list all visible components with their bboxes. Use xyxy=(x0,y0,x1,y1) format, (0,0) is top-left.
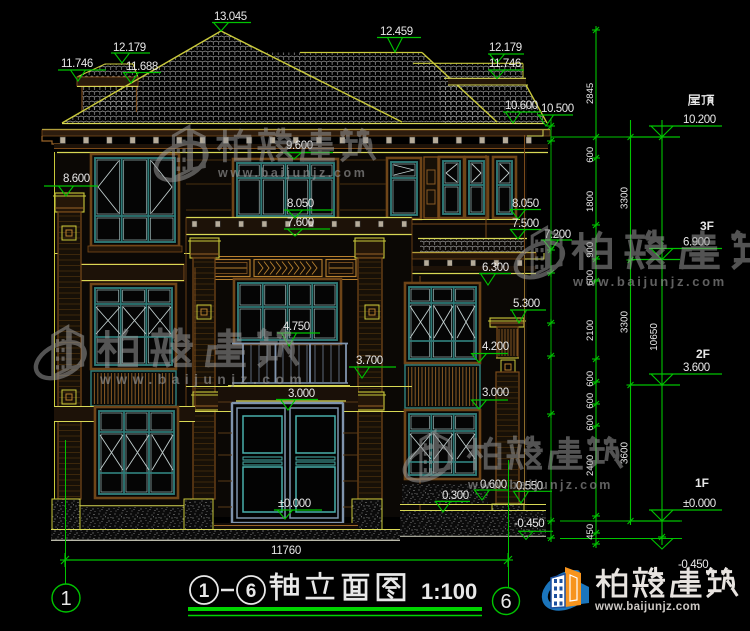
svg-text:2845: 2845 xyxy=(585,83,596,104)
svg-text:7.600: 7.600 xyxy=(287,217,314,229)
svg-text:12.179: 12.179 xyxy=(113,42,146,54)
svg-text:6: 6 xyxy=(246,581,257,602)
svg-text:600: 600 xyxy=(585,393,596,409)
svg-text:10.600: 10.600 xyxy=(505,100,538,112)
svg-text:4.200: 4.200 xyxy=(482,341,509,353)
svg-text:3300: 3300 xyxy=(620,186,631,209)
svg-text:6: 6 xyxy=(500,591,511,613)
svg-text:600: 600 xyxy=(585,371,596,387)
svg-text:www.baijunjz.com: www.baijunjz.com xyxy=(594,601,701,613)
svg-text:www.baijunjz.com: www.baijunjz.com xyxy=(572,274,727,289)
svg-text:1F: 1F xyxy=(695,476,709,490)
svg-text:www.baijunjz.com: www.baijunjz.com xyxy=(99,371,307,387)
svg-text:-0.450: -0.450 xyxy=(514,518,544,530)
svg-text:-0.450: -0.450 xyxy=(678,559,708,571)
svg-text:10650: 10650 xyxy=(649,323,660,351)
svg-text:2100: 2100 xyxy=(585,320,596,341)
svg-text:±0.000: ±0.000 xyxy=(278,498,311,510)
svg-text:3.000: 3.000 xyxy=(482,387,509,399)
svg-text:1800: 1800 xyxy=(585,191,596,212)
svg-text:www.baijunjz.com: www.baijunjz.com xyxy=(467,478,613,492)
svg-text:11760: 11760 xyxy=(271,545,301,557)
svg-text:450: 450 xyxy=(585,524,596,540)
svg-text:5.300: 5.300 xyxy=(513,298,540,310)
svg-text:3.000: 3.000 xyxy=(288,388,315,400)
svg-text:3600: 3600 xyxy=(620,441,631,464)
svg-text:11.688: 11.688 xyxy=(126,61,158,73)
svg-text:www.baijunjz.com: www.baijunjz.com xyxy=(217,166,367,180)
svg-text:6.300: 6.300 xyxy=(482,262,509,274)
svg-text:11.746: 11.746 xyxy=(61,58,93,70)
svg-text:600: 600 xyxy=(585,147,596,163)
svg-text:3.700: 3.700 xyxy=(356,355,383,367)
svg-text:8.050: 8.050 xyxy=(287,198,314,210)
svg-text:7.500: 7.500 xyxy=(512,218,539,230)
svg-text:600: 600 xyxy=(585,415,596,431)
svg-text:0.300: 0.300 xyxy=(442,490,469,502)
svg-text:10.200: 10.200 xyxy=(683,114,716,126)
svg-text:12.179: 12.179 xyxy=(489,42,522,54)
svg-text:13.045: 13.045 xyxy=(214,11,247,23)
svg-text:3300: 3300 xyxy=(620,310,631,333)
svg-text:8.050: 8.050 xyxy=(512,198,539,210)
svg-text:12.459: 12.459 xyxy=(380,26,413,38)
svg-text:11.746: 11.746 xyxy=(489,58,521,70)
svg-text:1: 1 xyxy=(199,581,210,602)
svg-text:2F: 2F xyxy=(696,347,710,361)
svg-text:8.600: 8.600 xyxy=(63,173,90,185)
svg-text:1: 1 xyxy=(60,588,71,610)
svg-text:1:100: 1:100 xyxy=(421,579,477,604)
svg-text:3.600: 3.600 xyxy=(683,362,710,374)
svg-text:±0.000: ±0.000 xyxy=(683,498,716,510)
svg-text:10.500: 10.500 xyxy=(541,103,574,115)
